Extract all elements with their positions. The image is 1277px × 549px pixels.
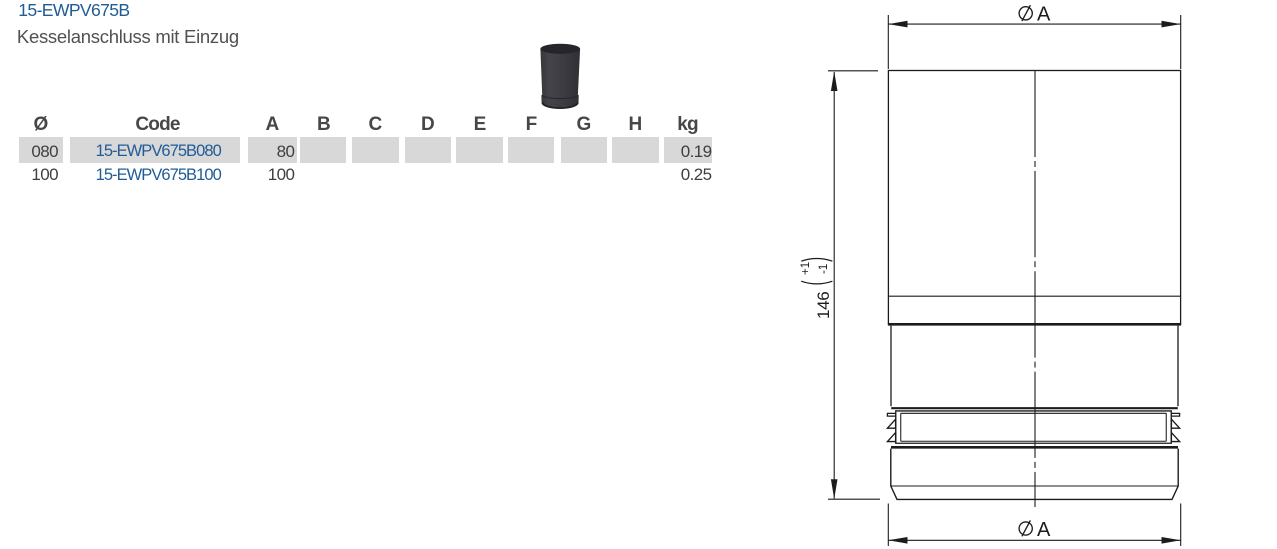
svg-text:146: 146 bbox=[814, 292, 833, 319]
svg-text:A: A bbox=[1037, 519, 1051, 541]
svg-text:+1: +1 bbox=[800, 262, 812, 275]
svg-text:A: A bbox=[1037, 4, 1051, 26]
svg-text:-1: -1 bbox=[818, 264, 830, 274]
